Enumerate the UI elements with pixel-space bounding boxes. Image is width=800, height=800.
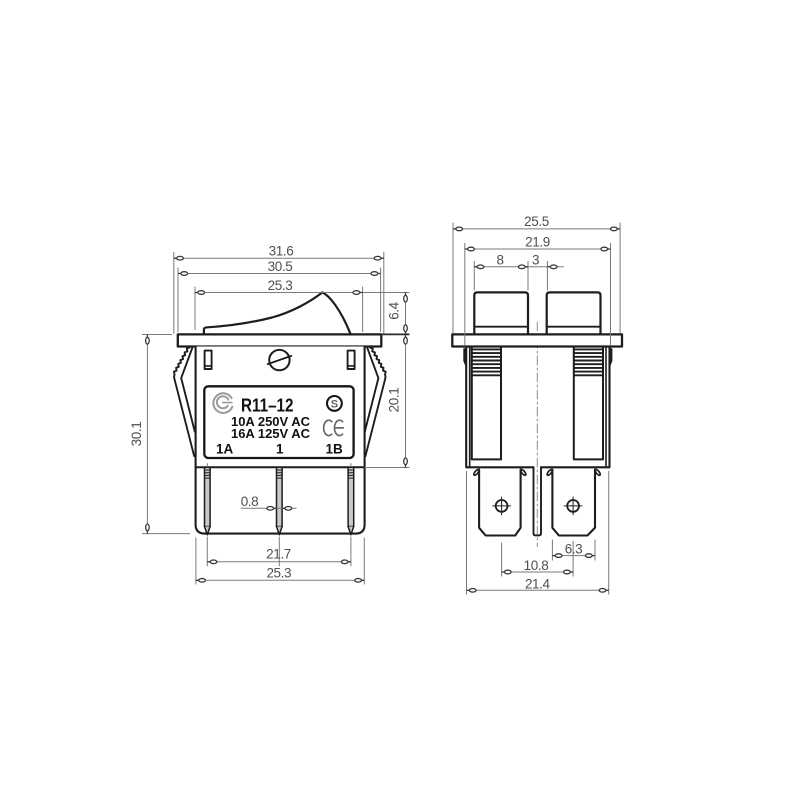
svg-text:1A: 1A — [216, 442, 234, 457]
svg-text:R11–12: R11–12 — [241, 395, 294, 416]
svg-text:21.4: 21.4 — [525, 576, 551, 591]
svg-text:8: 8 — [496, 253, 503, 268]
svg-text:S: S — [331, 399, 338, 411]
svg-text:6.4: 6.4 — [387, 301, 402, 319]
svg-text:25.3: 25.3 — [266, 566, 291, 581]
svg-text:25.3: 25.3 — [268, 278, 293, 293]
svg-text:10.8: 10.8 — [524, 558, 549, 573]
svg-text:21.9: 21.9 — [525, 234, 550, 249]
svg-text:30.1: 30.1 — [129, 422, 144, 447]
svg-text:0.8: 0.8 — [241, 494, 259, 509]
svg-text:20.1: 20.1 — [387, 388, 402, 413]
svg-text:1: 1 — [276, 442, 284, 457]
svg-text:30.5: 30.5 — [268, 259, 293, 274]
svg-text:31.6: 31.6 — [269, 244, 294, 259]
svg-text:3: 3 — [532, 253, 539, 268]
svg-text:16A 125V AC: 16A 125V AC — [231, 426, 311, 441]
svg-text:6.3: 6.3 — [565, 541, 583, 556]
svg-text:25.5: 25.5 — [524, 214, 549, 229]
svg-text:21.7: 21.7 — [266, 547, 291, 562]
svg-text:1B: 1B — [326, 442, 344, 457]
